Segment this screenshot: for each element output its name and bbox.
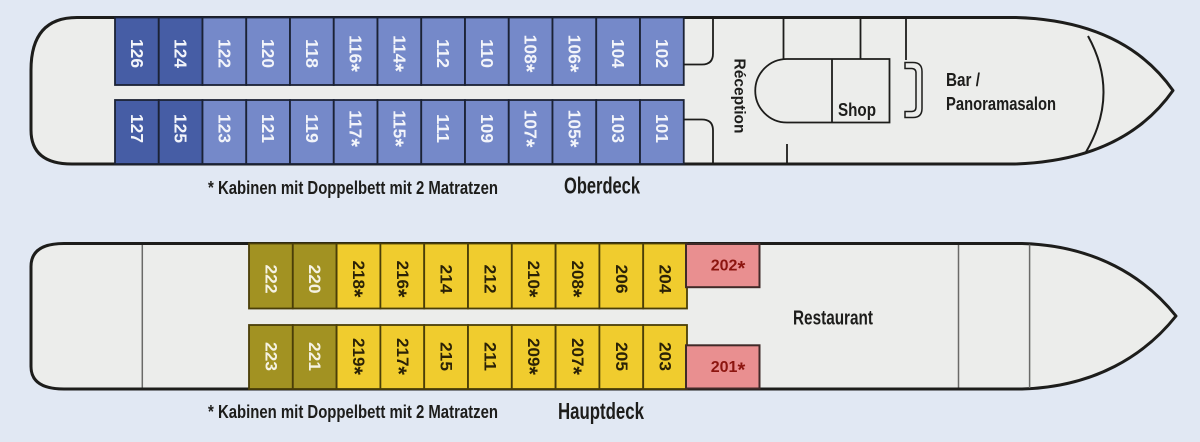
- svg-text:221: 221: [305, 342, 324, 371]
- svg-text:220: 220: [305, 265, 324, 294]
- svg-text:222: 222: [261, 265, 280, 294]
- svg-text:101: 101: [652, 114, 672, 143]
- svg-text:211: 211: [480, 342, 499, 371]
- svg-text:118: 118: [302, 39, 322, 68]
- svg-text:127: 127: [127, 114, 147, 143]
- svg-text:203: 203: [656, 342, 675, 371]
- svg-text:* Kabinen mit Doppelbett mit 2: * Kabinen mit Doppelbett mit 2 Matratzen: [208, 178, 498, 198]
- svg-text:Shop: Shop: [838, 100, 876, 120]
- svg-text:212: 212: [480, 265, 499, 294]
- svg-text:223: 223: [261, 342, 280, 371]
- svg-text:Oberdeck: Oberdeck: [564, 173, 640, 199]
- svg-text:Panoramasalon: Panoramasalon: [946, 94, 1056, 114]
- svg-text:206: 206: [612, 265, 631, 294]
- svg-text:215: 215: [437, 342, 456, 371]
- svg-text:Restaurant: Restaurant: [793, 308, 873, 330]
- svg-text:104: 104: [608, 39, 628, 68]
- svg-text:103: 103: [608, 114, 628, 143]
- svg-text:125: 125: [171, 114, 191, 143]
- svg-text:Réception: Réception: [731, 59, 748, 134]
- svg-text:121: 121: [258, 114, 278, 143]
- svg-text:102: 102: [652, 39, 672, 68]
- svg-text:124: 124: [171, 39, 191, 68]
- svg-text:204: 204: [656, 265, 675, 295]
- svg-text:Hauptdeck: Hauptdeck: [558, 398, 644, 424]
- svg-text:120: 120: [258, 39, 278, 68]
- svg-text:109: 109: [477, 114, 497, 143]
- svg-text:123: 123: [214, 114, 234, 143]
- svg-text:112: 112: [433, 39, 453, 68]
- svg-text:* Kabinen mit Doppelbett mit 2: * Kabinen mit Doppelbett mit 2 Matratzen: [208, 402, 498, 422]
- svg-text:111: 111: [433, 114, 453, 143]
- svg-text:119: 119: [302, 114, 322, 143]
- svg-text:122: 122: [214, 39, 234, 68]
- svg-text:205: 205: [612, 342, 631, 371]
- svg-text:214: 214: [437, 265, 456, 295]
- svg-text:110: 110: [477, 39, 497, 68]
- svg-text:126: 126: [127, 39, 147, 68]
- svg-text:Bar /: Bar /: [946, 70, 980, 90]
